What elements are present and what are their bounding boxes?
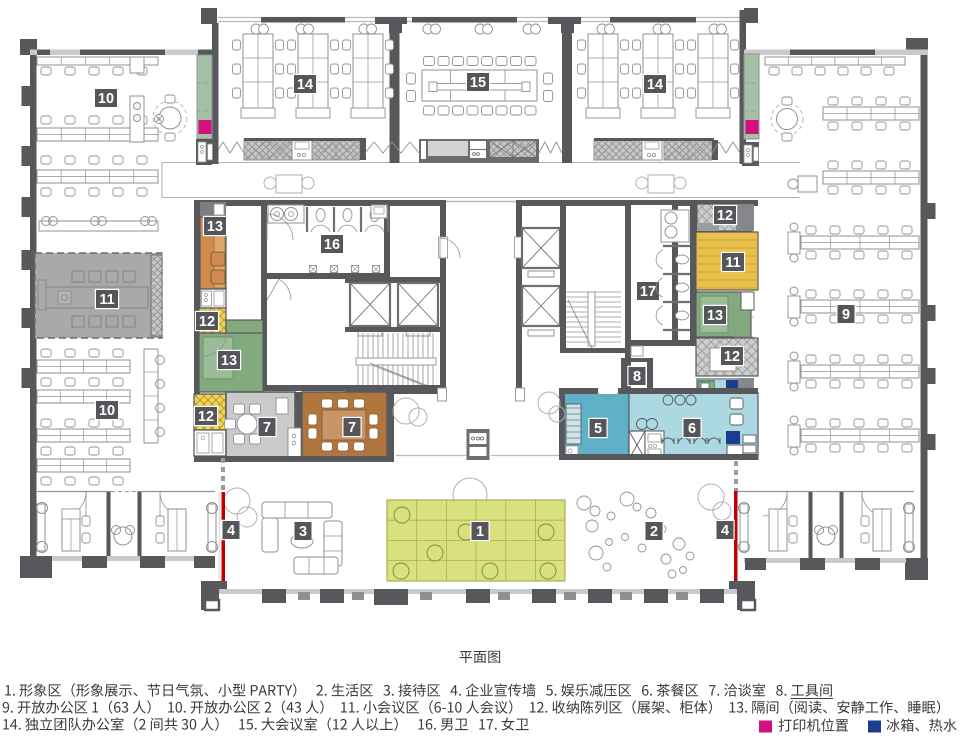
svg-text:12: 12 bbox=[198, 409, 214, 425]
svg-text:9: 9 bbox=[842, 307, 850, 323]
svg-text:12: 12 bbox=[199, 314, 215, 330]
svg-text:11: 11 bbox=[725, 255, 740, 271]
svg-text:14: 14 bbox=[297, 77, 313, 93]
svg-text:5: 5 bbox=[594, 421, 602, 437]
svg-text:13: 13 bbox=[221, 353, 237, 369]
svg-text:14: 14 bbox=[647, 77, 663, 93]
svg-text:12: 12 bbox=[717, 208, 733, 224]
svg-text:7: 7 bbox=[263, 420, 271, 436]
svg-text:8: 8 bbox=[633, 369, 641, 385]
svg-text:6: 6 bbox=[688, 421, 696, 437]
svg-text:11: 11 bbox=[99, 292, 114, 308]
svg-text:16: 16 bbox=[324, 237, 340, 253]
svg-text:10: 10 bbox=[98, 91, 114, 107]
svg-text:3: 3 bbox=[299, 524, 307, 540]
svg-text:4: 4 bbox=[227, 523, 235, 539]
svg-text:13: 13 bbox=[207, 219, 223, 235]
svg-text:17: 17 bbox=[640, 284, 656, 300]
svg-text:2: 2 bbox=[650, 524, 658, 540]
svg-text:1: 1 bbox=[476, 524, 484, 540]
svg-text:12: 12 bbox=[724, 349, 740, 365]
svg-text:7: 7 bbox=[348, 420, 356, 436]
svg-text:4: 4 bbox=[721, 523, 729, 539]
svg-text:15: 15 bbox=[470, 75, 486, 91]
svg-text:13: 13 bbox=[707, 308, 723, 324]
svg-text:10: 10 bbox=[99, 403, 115, 419]
